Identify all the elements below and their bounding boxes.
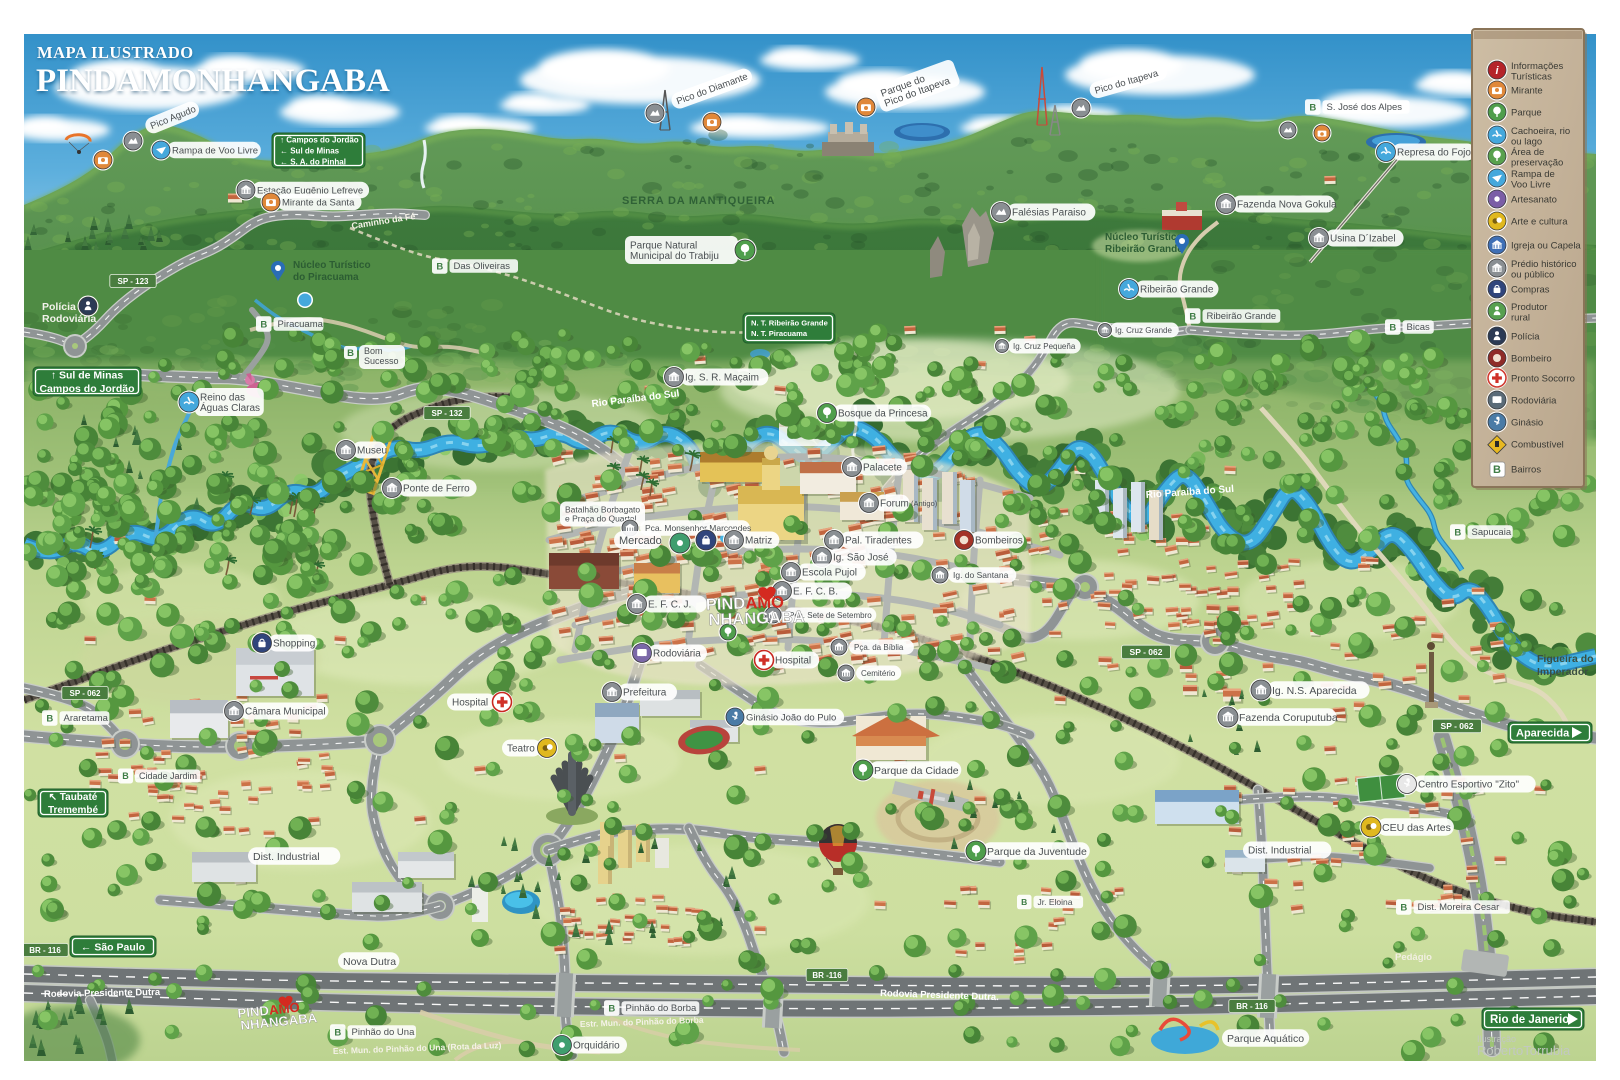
svg-text:Shopping: Shopping [273,639,315,650]
svg-text:Matriz: Matriz [745,536,772,547]
svg-text:Parque: Parque [1511,108,1542,119]
svg-text:Cemitério: Cemitério [861,669,896,678]
svg-text:Bosque da Princesa: Bosque da Princesa [838,409,928,420]
svg-text:Municipal do Trabiju: Municipal do Trabiju [630,251,719,262]
svg-text:Prédio histórico: Prédio histórico [1511,259,1576,270]
svg-text:Sapucaia: Sapucaia [1472,527,1512,538]
svg-text:Piracuama: Piracuama [278,319,324,330]
svg-text:Ginásio João do Pulo: Ginásio João do Pulo [746,712,836,723]
svg-text:B: B [1454,527,1461,538]
svg-text:B: B [436,261,443,272]
svg-text:Bombeiros: Bombeiros [975,536,1023,547]
svg-text:Ribeirão Grande: Ribeirão Grande [1105,244,1183,255]
svg-text:Usina D´Izabel: Usina D´Izabel [1330,233,1396,245]
svg-text:Ginásio: Ginásio [1511,418,1543,429]
svg-text:preservação: preservação [1511,158,1563,169]
svg-text:Prefeitura: Prefeitura [623,688,667,699]
svg-text:Igreja ou Capela: Igreja ou Capela [1511,241,1581,252]
svg-text:B: B [122,771,129,781]
svg-text:Mirante: Mirante [1511,86,1543,97]
svg-text:B: B [1493,464,1501,476]
svg-text:B: B [46,713,53,724]
svg-text:Pça. da Bíblia: Pça. da Bíblia [854,643,904,652]
svg-text:Núcleo Turístico: Núcleo Turístico [1105,232,1183,243]
svg-text:B: B [1400,902,1407,913]
svg-text:Figueira do: Figueira do [1537,653,1594,665]
svg-text:Fazenda Nova Gokula: Fazenda Nova Gokula [1237,200,1337,211]
svg-text:Bombeiro: Bombeiro [1511,354,1552,365]
svg-text:Combustível: Combustível [1511,440,1564,451]
svg-text:B: B [1021,897,1027,907]
svg-text:Pinhão do Borba: Pinhão do Borba [626,1003,697,1014]
svg-text:RobertoTorrubia: RobertoTorrubia [1477,1043,1571,1058]
svg-text:SERRA DA MANTIQUEIRA: SERRA DA MANTIQUEIRA [622,195,775,207]
svg-text:Artesanato: Artesanato [1511,195,1557,206]
svg-text:B: B [334,1027,341,1038]
svg-text:SP - 123: SP - 123 [118,277,150,286]
svg-text:Ig. Cruz Pequeña: Ig. Cruz Pequeña [1013,342,1076,351]
svg-text:Imperador: Imperador [1537,666,1588,678]
svg-text:E. F. C. J.: E. F. C. J. [648,600,691,611]
svg-text:Centro Esportivo "Zito": Centro Esportivo "Zito" [1418,780,1519,791]
svg-text:NHANGABA: NHANGABA [708,608,805,629]
svg-text:B: B [260,319,267,330]
svg-text:N. T. Piracuama: N. T. Piracuama [751,329,808,338]
svg-text:BR - 116: BR - 116 [1236,1002,1268,1011]
svg-text:Jr. Eloina: Jr. Eloina [1038,897,1073,907]
svg-text:Câmara Municipal: Câmara Municipal [245,707,326,718]
svg-text:Nova Dutra: Nova Dutra [343,956,396,968]
svg-text:Museu: Museu [357,446,387,457]
svg-text:Mercado: Mercado [619,535,662,547]
svg-text:Informações: Informações [1511,61,1564,72]
svg-text:← Sul de Minas: ← Sul de Minas [280,146,340,155]
svg-text:Pinhão do Una: Pinhão do Una [352,1027,416,1038]
svg-text:Área de: Área de [1511,147,1544,158]
svg-text:Rio de Janerio: Rio de Janerio [1490,1014,1569,1026]
svg-text:do Piracuama: do Piracuama [293,272,359,283]
svg-text:Arte e cultura: Arte e cultura [1511,217,1568,228]
svg-text:Dist. Industrial: Dist. Industrial [253,851,320,863]
svg-text:Pedágio: Pedágio [1395,952,1432,963]
svg-text:Voo Livre: Voo Livre [1511,180,1551,191]
svg-text:Produtor: Produtor [1511,302,1547,313]
svg-text:Campos do Jordão: Campos do Jordão [39,383,134,395]
svg-text:MAPA ILUSTRADO: MAPA ILUSTRADO [37,43,194,62]
svg-text:Bom: Bom [364,346,383,356]
svg-text:Ig. do Santana: Ig. do Santana [953,570,1009,580]
svg-text:← São Paulo: ← São Paulo [81,941,145,953]
svg-text:← S. A. do Pinhal: ← S. A. do Pinhal [280,157,346,166]
svg-text:Araretama: Araretama [64,713,109,724]
svg-text:Bicas: Bicas [1407,322,1430,333]
svg-text:Rampa de: Rampa de [1511,169,1555,180]
svg-text:↑ Sul de Minas: ↑ Sul de Minas [51,370,124,382]
svg-text:PINDAMONHANGABA: PINDAMONHANGABA [36,63,390,99]
svg-text:Rodoviária: Rodoviária [1511,396,1557,407]
svg-text:Parque da Juventude: Parque da Juventude [987,846,1087,858]
svg-text:B: B [1189,311,1196,322]
svg-text:Bairros: Bairros [1511,465,1541,476]
svg-text:Turísticas: Turísticas [1511,72,1552,83]
svg-text:Ig. São José: Ig. São José [833,553,889,564]
svg-text:B: B [608,1003,615,1014]
svg-text:(Antigo): (Antigo) [911,499,938,508]
svg-text:SP - 062: SP - 062 [1130,647,1163,657]
svg-text:Falésias Paraiso: Falésias Paraiso [1012,208,1086,219]
svg-text:Das Oliveiras: Das Oliveiras [454,261,511,272]
svg-text:Reino das: Reino das [200,393,245,404]
svg-text:Ribeirão Grande: Ribeirão Grande [1207,311,1277,322]
svg-text:ou lago: ou lago [1511,137,1542,148]
svg-text:Rodovia Presidente Dutra: Rodovia Presidente Dutra [44,987,161,1000]
svg-text:Palacete: Palacete [863,463,902,474]
svg-text:↖ Taubaté: ↖ Taubaté [49,792,98,803]
svg-text:Mirante da Santa: Mirante da Santa [282,197,355,208]
svg-text:Aparecida: Aparecida [1516,728,1570,740]
svg-text:Cachoeira, rio: Cachoeira, rio [1511,126,1570,137]
svg-text:Compras: Compras [1511,285,1550,296]
svg-text:Parque Aquático: Parque Aquático [1227,1033,1304,1045]
svg-text:BR -116: BR -116 [812,971,842,980]
svg-text:CEU das Artes: CEU das Artes [1382,822,1451,834]
svg-text:rural: rural [1511,313,1530,324]
svg-text:Ponte de Ferro: Ponte de Ferro [403,484,470,495]
svg-text:Águas Claras: Águas Claras [200,401,260,414]
svg-text:Dist. Industrial: Dist. Industrial [1248,846,1311,857]
svg-text:Parque da Cidade: Parque da Cidade [874,765,959,777]
svg-text:B: B [347,348,354,359]
svg-text:Tremembé: Tremembé [48,805,98,816]
svg-text:Cidade Jardim: Cidade Jardim [139,771,197,781]
svg-text:↑ Campos do Jordão: ↑ Campos do Jordão [280,135,359,144]
svg-text:Orquidário: Orquidário [573,1041,620,1052]
svg-text:Ribeirão Grande: Ribeirão Grande [1140,285,1214,296]
svg-text:B: B [1309,102,1316,113]
svg-text:Hospital: Hospital [452,698,488,709]
svg-text:Pal. Tiradentes: Pal. Tiradentes [845,536,912,547]
svg-text:Núcleo Turístico: Núcleo Turístico [293,260,371,271]
svg-text:Fazenda Coruputuba: Fazenda Coruputuba [1239,712,1338,724]
svg-text:Pronto Socorro: Pronto Socorro [1511,374,1575,385]
svg-text:N. T. Ribeirão Grande: N. T. Ribeirão Grande [751,318,828,327]
svg-text:Teatro: Teatro [507,744,535,755]
svg-text:Polícia: Polícia [42,301,76,313]
svg-text:BR - 116: BR - 116 [29,946,61,955]
svg-text:Polícia: Polícia [1511,332,1540,343]
svg-text:Dist. Moreira Cesar: Dist. Moreira Cesar [1418,902,1500,913]
svg-text:Parque Natural: Parque Natural [630,241,697,252]
svg-text:Escola Pujol: Escola Pujol [802,568,857,579]
svg-text:Represa do Fojo: Represa do Fojo [1397,148,1471,159]
svg-text:Forum: Forum [880,499,909,510]
svg-text:Rodoviária: Rodoviária [653,649,701,660]
svg-text:SP - 062: SP - 062 [70,689,102,698]
svg-text:Rampa de Voo Livre: Rampa de Voo Livre [172,145,258,156]
svg-text:SP - 132: SP - 132 [432,409,464,418]
svg-text:Ig. S. R. Maçaim: Ig. S. R. Maçaim [685,373,759,384]
svg-text:Hospital: Hospital [775,656,811,667]
svg-text:Ig. N.S. Aparecida: Ig. N.S. Aparecida [1272,685,1357,697]
svg-text:S. José dos Alpes: S. José dos Alpes [1327,102,1403,113]
svg-text:E. F. C. B.: E. F. C. B. [793,587,838,598]
svg-text:SP - 062: SP - 062 [1441,721,1474,731]
svg-text:B: B [1389,322,1396,333]
svg-text:Sucesso: Sucesso [364,356,399,366]
svg-text:ou público: ou público [1511,270,1554,281]
svg-text:Ig. Cruz Grande: Ig. Cruz Grande [1115,326,1172,335]
